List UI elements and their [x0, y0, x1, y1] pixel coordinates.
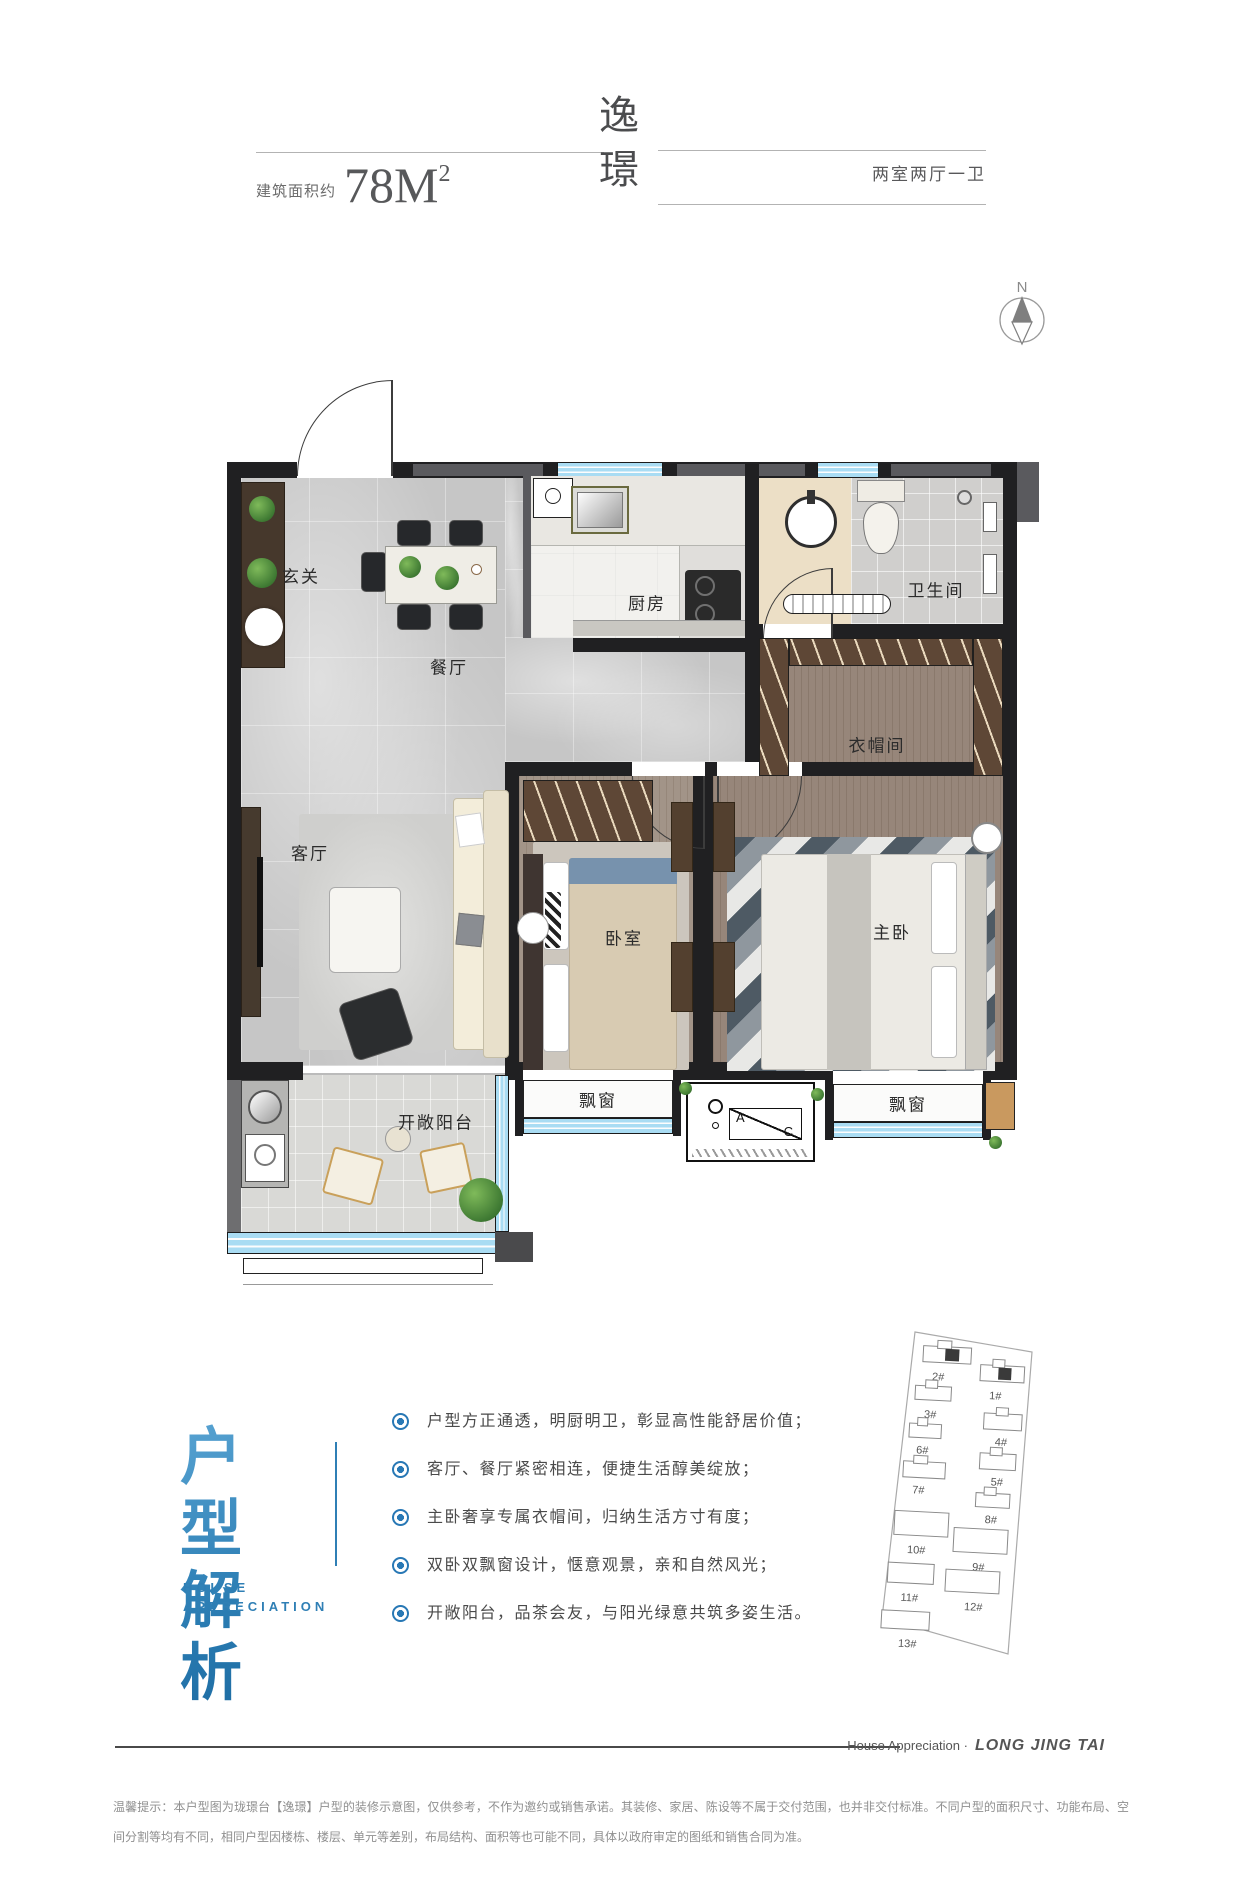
sofa-back: [483, 790, 509, 1058]
building-area-value: 78M: [344, 160, 438, 210]
compass-icon: N: [993, 278, 1051, 354]
balcony-sink: [248, 1090, 282, 1124]
analysis-subtitle-line2: APPRECIATION: [183, 1597, 328, 1616]
shower-head-icon: [957, 490, 972, 505]
teacup-icon: [471, 564, 482, 575]
site-building: 2#: [922, 1340, 972, 1385]
master-pillow: [931, 966, 957, 1058]
toilet-tank: [857, 480, 905, 502]
wall-top-gray-2: [677, 464, 805, 476]
building-area-label: 建筑面积约: [256, 180, 336, 210]
site-building: 13#: [880, 1610, 930, 1651]
dining-chair: [449, 604, 483, 630]
site-building-label: 11#: [900, 1592, 919, 1605]
bedroom-stool: [517, 912, 549, 944]
floor-hallway: [505, 638, 745, 762]
bath-shelf-item: [983, 554, 997, 594]
list-item: 开敞阳台，品茶会友，与阳光绿意共筑多姿生活。: [392, 1604, 812, 1624]
wall-balcony-left: [227, 1080, 241, 1240]
footer-brand-prefix: House Appreciation ·: [847, 1738, 968, 1753]
plant-icon: [247, 558, 277, 588]
bullet-icon: [392, 1605, 409, 1622]
bedroom-pillow: [543, 964, 569, 1052]
label-bedroom: 卧室: [605, 925, 643, 950]
feature-list: 户型方正通透，明厨明卫，彰显高性能舒居价值； 客厅、餐厅紧密相连，便捷生活醇美绽…: [392, 1412, 812, 1652]
site-building: 1#: [979, 1359, 1025, 1404]
plant-icon: [399, 556, 421, 578]
plant-icon: [989, 1136, 1002, 1149]
bay-left-stub-1: [515, 1062, 523, 1136]
stove-burner-icon: [695, 576, 715, 596]
list-item: 户型方正通透，明厨明卫，彰显高性能舒居价值；: [392, 1412, 812, 1432]
plant-icon: [679, 1082, 692, 1095]
master-pillow: [931, 862, 957, 954]
header-divider-right-bottom: [658, 204, 986, 205]
bay-window-right-glass: [833, 1122, 983, 1138]
bedroom-door-gap: [632, 762, 705, 776]
analysis-title-divider: [335, 1442, 337, 1566]
bullet-icon: [392, 1557, 409, 1574]
ac-hatch: [692, 1149, 809, 1157]
nightstand: [713, 942, 735, 1012]
cloakroom-wardrobe: [759, 638, 789, 776]
bay-window-left-glass: [523, 1118, 673, 1134]
label-cloakroom: 衣帽间: [849, 732, 906, 757]
site-building: 10#: [893, 1510, 949, 1558]
bullet-icon: [392, 1461, 409, 1478]
entry-door-leaf: [391, 380, 393, 476]
bullet-icon: [392, 1509, 409, 1526]
analysis-title-line1: 户型: [180, 1422, 322, 1566]
building-area: 建筑面积约 78M 2: [256, 160, 450, 210]
kitchen-counter-bottom: [573, 620, 745, 636]
site-building: 12#: [944, 1569, 1000, 1615]
balcony-outline: [243, 1284, 493, 1285]
floor-plan: A C: [227, 462, 1017, 1302]
feature-text: 户型方正通透，明厨明卫，彰显高性能舒居价值；: [427, 1412, 812, 1431]
floor-kitchen-pass: [505, 476, 523, 638]
cloakroom-wardrobe: [973, 638, 1003, 776]
balcony-open-line: [303, 1073, 505, 1075]
site-building-label: 1#: [989, 1390, 1003, 1403]
bullet-icon: [392, 1413, 409, 1430]
dining-chair: [361, 552, 387, 592]
site-building-label: 10#: [907, 1544, 927, 1557]
page-title: 逸璟: [592, 94, 638, 202]
compass-north-label: N: [1017, 279, 1028, 296]
bay-left-stub-2: [673, 1062, 681, 1136]
bedroom-wardrobe: [523, 780, 653, 842]
site-building: 7#: [902, 1455, 946, 1498]
nightstand: [713, 802, 735, 872]
footer-disclaimer: 温馨提示：本户型图为珑璟台【逸璟】户型的装修示意图，仅供参考，不作为邀约或销售承…: [113, 1792, 1129, 1852]
towel-radiator: [783, 594, 891, 614]
dining-chair: [449, 520, 483, 546]
wall-stub-right: [1017, 462, 1039, 522]
list-item: 主卧奢享专属衣帽间，归纳生活方寸有度；: [392, 1508, 812, 1528]
site-building: 6#: [908, 1417, 942, 1458]
header-divider-left: [256, 152, 604, 153]
bedroom-bed: [569, 858, 677, 1070]
label-living: 客厅: [291, 840, 329, 865]
washing-machine-door-icon: [254, 1144, 276, 1166]
site-building-label: 8#: [984, 1514, 998, 1527]
kitchen-appliance-knob: [545, 488, 561, 504]
building-area-sup: 2: [438, 162, 450, 186]
analysis-subtitle-line1: HOUSE: [183, 1578, 328, 1597]
bathroom-window: [817, 462, 879, 478]
ac-letter-c: C: [784, 1124, 793, 1139]
plant-icon: [459, 1178, 503, 1222]
balcony-step: [243, 1258, 483, 1274]
site-building: 11#: [886, 1562, 934, 1605]
feature-text: 主卧奢享专属衣帽间，归纳生活方寸有度；: [427, 1508, 760, 1527]
kitchen-sink-basin: [577, 492, 623, 528]
plant-icon: [811, 1088, 824, 1101]
ac-drain-small-icon: [712, 1122, 719, 1129]
site-building: 5#: [978, 1447, 1016, 1490]
feature-text: 开敞阳台，品茶会友，与阳光绿意共筑多姿生活。: [427, 1604, 812, 1623]
wall-top-gray-3: [891, 464, 991, 476]
site-building: 4#: [982, 1407, 1022, 1450]
laundry-basket: [971, 822, 1003, 854]
label-balcony: 开敞阳台: [398, 1109, 474, 1134]
bath-shelf-item: [983, 502, 997, 532]
footer-brand: House Appreciation · LONG JING TAI: [847, 1737, 1105, 1755]
footer-brand-name: LONG JING TAI: [975, 1737, 1105, 1755]
dining-chair: [397, 604, 431, 630]
site-building: 9#: [952, 1527, 1008, 1575]
feature-text: 客厅、餐厅紧密相连，便捷生活醇美绽放；: [427, 1460, 760, 1479]
wall-kitchen-bottom: [573, 638, 745, 652]
site-building-label: 12#: [964, 1601, 984, 1614]
poster-page: 建筑面积约 78M 2 逸璟 两室两厅一卫 N: [0, 0, 1241, 1890]
zebra-pillow: [545, 892, 561, 948]
label-bay-window-right: 飘窗: [889, 1091, 927, 1116]
sofa-pillow: [455, 913, 484, 948]
bedroom-throw: [569, 858, 677, 884]
entry-rug: [245, 608, 283, 646]
sofa-pillow: [455, 812, 485, 847]
ac-platform: A C: [686, 1082, 815, 1162]
label-dining: 餐厅: [430, 654, 468, 679]
wall-top-gray-1: [413, 464, 543, 476]
wall-cloak-left: [745, 638, 759, 776]
site-building: 8#: [974, 1487, 1010, 1528]
list-item: 双卧双飘窗设计，惬意观景，亲和自然风光；: [392, 1556, 812, 1576]
balcony-glass-bottom: [227, 1232, 497, 1254]
site-map: 2# 1# 3# 4# 6# 5#: [880, 1322, 1055, 1672]
label-kitchen: 厨房: [628, 590, 666, 615]
ac-letter-a: A: [736, 1110, 745, 1125]
bedroom-door-leaf: [703, 776, 705, 849]
site-building-label: 13#: [898, 1638, 918, 1651]
wall-right: [1003, 462, 1017, 1066]
nightstand: [671, 802, 693, 872]
bedroom-headboard: [523, 854, 543, 1070]
tv: [257, 857, 263, 967]
layout-label: 两室两厅一卫: [658, 160, 986, 185]
bathroom-faucet-icon: [807, 490, 815, 504]
wall-left: [227, 462, 241, 1080]
plant-icon: [435, 566, 459, 590]
analysis-title: 户型 解析: [180, 1422, 322, 1710]
wall-kitchen-bath: [745, 462, 759, 638]
analysis-subtitle: HOUSE APPRECIATION: [183, 1578, 328, 1616]
master-headboard: [965, 854, 987, 1070]
label-bay-window-left: 飘窗: [579, 1087, 617, 1112]
header-divider-right-top: [658, 150, 986, 151]
feature-text: 双卧双飘窗设计，惬意观景，亲和自然风光；: [427, 1556, 777, 1575]
site-building: 3#: [914, 1379, 952, 1422]
ac-box: A C: [729, 1108, 802, 1140]
wall-balcony-threshold: [241, 1062, 303, 1080]
list-item: 客厅、餐厅紧密相连，便捷生活醇美绽放；: [392, 1460, 812, 1480]
label-master-bedroom: 主卧: [873, 919, 911, 944]
coffee-table: [329, 887, 401, 973]
footer-divider: [115, 1746, 900, 1748]
bay-right-stub-1: [825, 1066, 833, 1140]
nightstand: [671, 942, 693, 1012]
balcony-corner-pillar: [495, 1232, 533, 1262]
dining-chair: [397, 520, 431, 546]
ac-drain-icon: [708, 1099, 723, 1114]
cloakroom-wardrobe: [789, 638, 973, 666]
master-bed-throw: [827, 854, 871, 1070]
label-entry: 玄关: [282, 563, 320, 588]
wall-kitchen-left: [523, 476, 531, 638]
entry-door-arc: [297, 380, 393, 476]
ac-unit-side: [985, 1082, 1015, 1130]
plant-icon: [249, 496, 275, 522]
site-building-label: 7#: [912, 1484, 926, 1497]
label-bathroom: 卫生间: [908, 577, 965, 602]
